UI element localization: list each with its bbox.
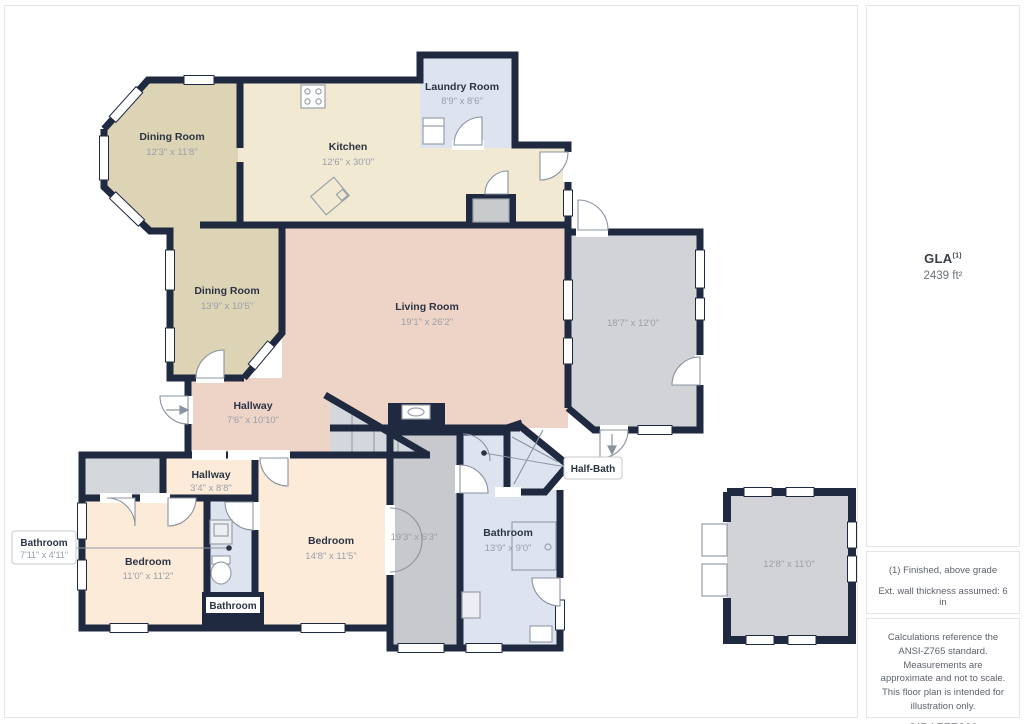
- dims-bedroom2: 14'8" x 11'5": [305, 551, 356, 562]
- outbuilding-door-leaf: [702, 564, 727, 596]
- dims-kitchen: 12'6" x 30'0": [322, 157, 374, 168]
- note-finished: (1) Finished, above grade: [867, 565, 1019, 576]
- bathroom-callout-name: Bathroom: [20, 538, 67, 549]
- dims-hallway1: 7'6" x 10'10": [227, 415, 279, 426]
- gla-label: GLA: [924, 251, 952, 266]
- mud-bench: [473, 199, 509, 222]
- fireplace: [402, 405, 430, 419]
- gla-panel: GLA(1) 2439 ft²: [866, 5, 1020, 547]
- toilet-icon-2: [530, 626, 552, 642]
- disclaimer-text: Calculations reference the ANSI-Z765 sta…: [877, 631, 1009, 714]
- toilet-icon: [211, 562, 231, 584]
- dims-outbuilding: 12'8" x 11'0": [763, 559, 814, 570]
- dims-bedroom1: 11'0" x 11'2": [123, 571, 174, 582]
- room-garage-floor: [567, 232, 700, 430]
- label-dining1: Dining Room: [139, 131, 204, 143]
- label-bathroom-main: Bathroom: [483, 527, 533, 539]
- label-laundry: Laundry Room: [425, 81, 499, 93]
- label-kitchen: Kitchen: [329, 141, 368, 153]
- label-hallway2: Hallway: [191, 469, 230, 481]
- label-bedroom2: Bedroom: [308, 535, 354, 547]
- label-hallway1: Hallway: [233, 400, 272, 412]
- bathroom-small-label: Bathroom: [209, 601, 256, 612]
- vanity-icon: [462, 592, 480, 618]
- floorplan-page: Bathroom 7'11" x 4'11" Half-Bath Bathroo…: [0, 0, 1024, 724]
- gla-title: GLA(1): [867, 251, 1019, 266]
- dims-dining2: 13'9" x 10'5": [201, 301, 253, 312]
- dims-living: 19'1" x 26'2": [401, 317, 453, 328]
- outbuilding-door-leaf: [702, 524, 727, 556]
- dims-laundry: 8'9" x 8'6": [441, 96, 483, 107]
- dims-bathroom-main: 13'9" x 9'0": [485, 543, 532, 554]
- gla-footnote-marker: (1): [952, 253, 961, 260]
- dims-hallway2: 3'4" x 8'8": [190, 483, 232, 494]
- disclaimer-panel: Calculations reference the ANSI-Z765 sta…: [866, 618, 1020, 718]
- bathroom-callout-dims: 7'11" x 4'11": [20, 550, 68, 560]
- label-bedroom1: Bedroom: [125, 556, 171, 568]
- closet-floor: [82, 458, 163, 498]
- stove-icon: [301, 85, 325, 108]
- label-living: Living Room: [395, 301, 459, 313]
- dims-dining1: 12'3" x 11'8": [146, 147, 197, 158]
- washer-icon: [423, 118, 444, 144]
- label-dining2: Dining Room: [194, 285, 259, 297]
- note-wall-thickness: Ext. wall thickness assumed: 6 in: [867, 586, 1019, 608]
- gla-value: 2439 ft²: [867, 270, 1019, 282]
- notes-panel: (1) Finished, above grade Ext. wall thic…: [866, 551, 1020, 614]
- dims-corridor: 19'3" x 6'3": [391, 532, 438, 543]
- dims-garage: 18'7" x 12'0": [607, 318, 659, 329]
- halfbath-callout-name: Half-Bath: [571, 464, 615, 475]
